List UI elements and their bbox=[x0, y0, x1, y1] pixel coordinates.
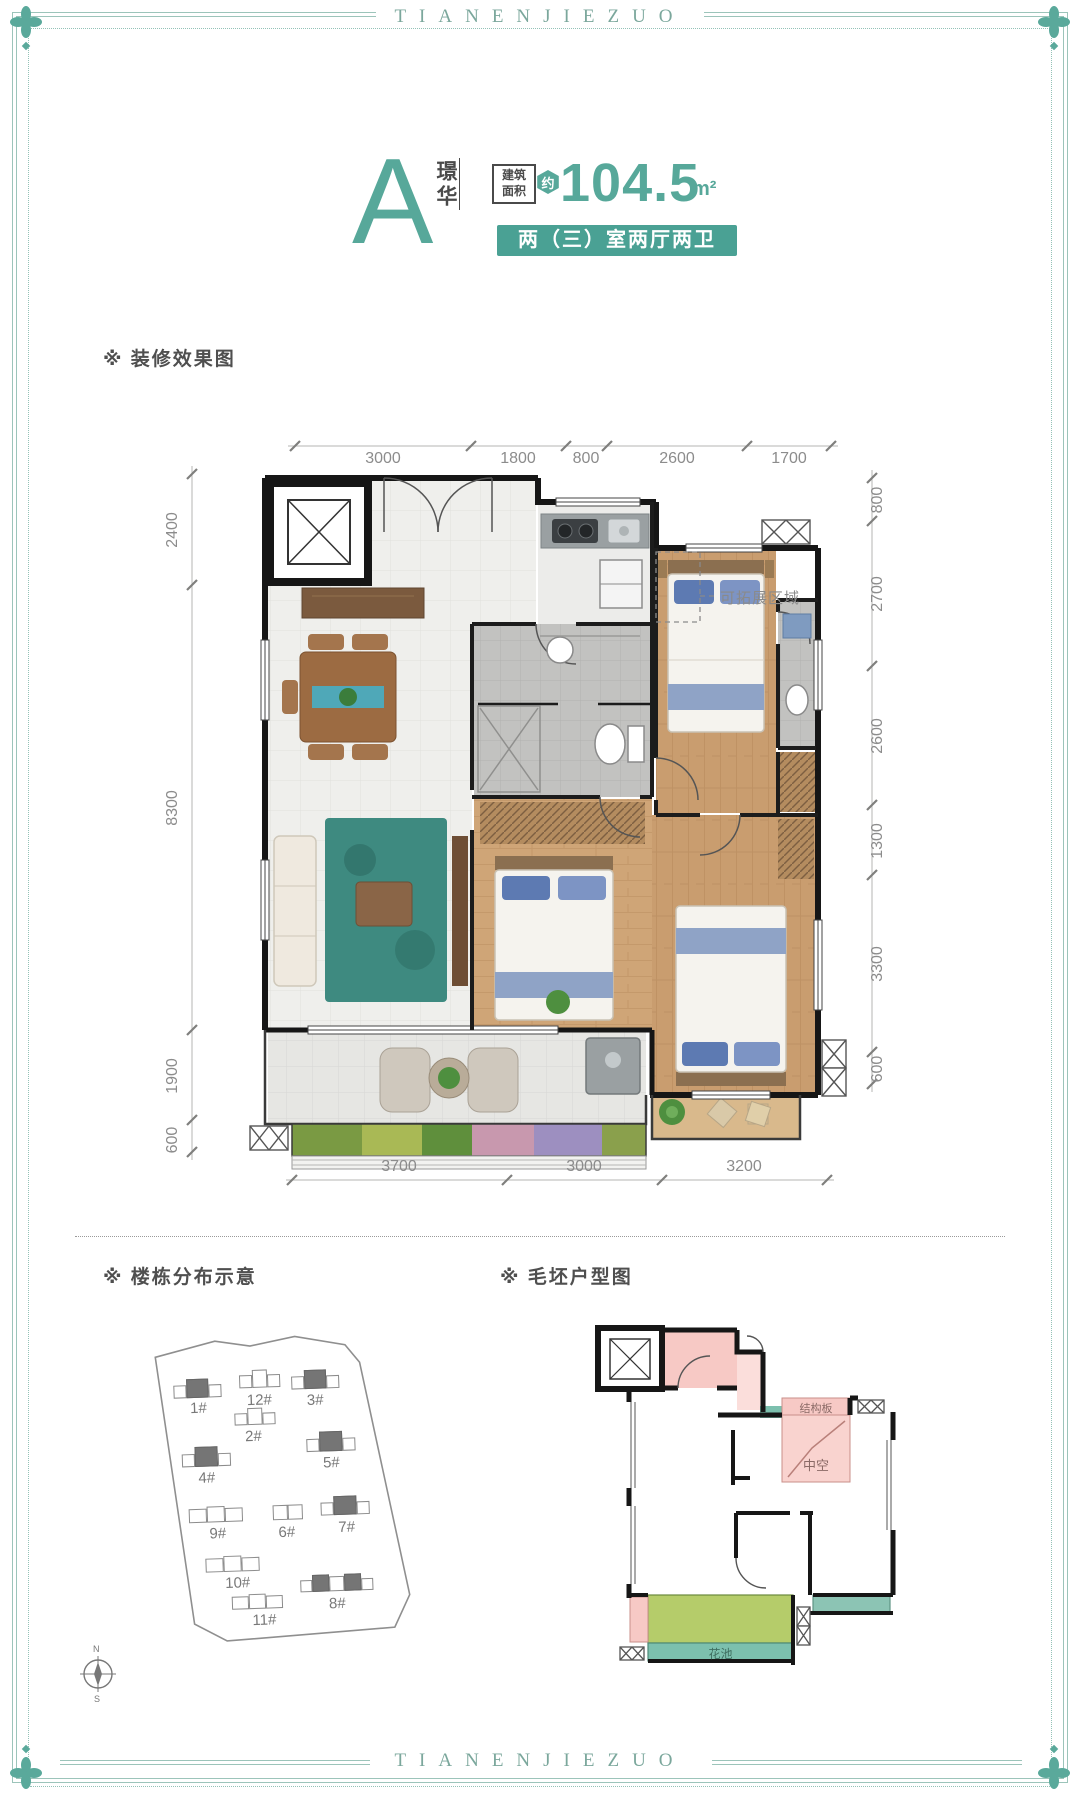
dim-label: 3300 bbox=[869, 929, 887, 999]
flowerbed-label: 花池 bbox=[648, 1645, 793, 1662]
compass-south-label: S bbox=[94, 1694, 100, 1704]
rough-floorplan bbox=[500, 1300, 920, 1680]
building-label: 2# bbox=[245, 1428, 262, 1446]
building-label: 8# bbox=[329, 1595, 346, 1613]
site-building bbox=[189, 1505, 244, 1523]
building-label: 5# bbox=[323, 1454, 340, 1472]
section-label-render: ※ 装修效果图 bbox=[103, 344, 236, 371]
dim-label: 1300 bbox=[869, 806, 887, 876]
divider bbox=[60, 1760, 370, 1761]
site-building bbox=[320, 1495, 370, 1516]
section-label-site: ※ 楼栋分布示意 bbox=[103, 1262, 257, 1289]
dim-label: 2400 bbox=[164, 495, 182, 565]
site-building bbox=[306, 1430, 356, 1452]
poster-page: { "brand": { "top_text": "TIANENJIEZUO",… bbox=[0, 0, 1080, 1795]
building-label: 3# bbox=[307, 1391, 324, 1409]
unit-name: 璟华 bbox=[430, 160, 460, 210]
building-label: 11# bbox=[252, 1611, 277, 1629]
site-building bbox=[173, 1378, 222, 1399]
dim-label: 2700 bbox=[869, 559, 887, 629]
building-label: 6# bbox=[278, 1524, 295, 1542]
dim-label: 3000 bbox=[343, 450, 423, 468]
decorated-floorplan bbox=[140, 430, 900, 1200]
site-building bbox=[234, 1407, 276, 1425]
dim-label: 1900 bbox=[164, 1041, 182, 1111]
clover-icon bbox=[8, 1743, 44, 1791]
expand-area-label: 可拓展区域 bbox=[720, 587, 800, 608]
layout-banner: 两（三）室两厅两卫 bbox=[497, 225, 737, 256]
area-box-line1: 建筑 bbox=[494, 168, 534, 184]
divider bbox=[712, 1764, 1022, 1765]
dim-label: 1700 bbox=[749, 450, 829, 468]
site-plan: 1# 12# 3# 2# 4# 5# 9# 6# 7# 10# 8# 11# bbox=[145, 1325, 476, 1656]
site-building bbox=[273, 1504, 304, 1520]
building-label: 9# bbox=[209, 1525, 226, 1543]
dim-label: 1800 bbox=[478, 450, 558, 468]
building-label: 1# bbox=[190, 1400, 207, 1418]
section-separator bbox=[75, 1236, 1005, 1237]
dim-label: 800 bbox=[869, 465, 887, 535]
dim-label: 600 bbox=[869, 1034, 887, 1104]
site-building bbox=[239, 1369, 281, 1388]
building-label: 10# bbox=[225, 1574, 251, 1592]
site-building bbox=[291, 1369, 340, 1390]
site-building bbox=[300, 1573, 374, 1593]
area-box: 建筑 面积 bbox=[492, 164, 536, 204]
area-value: 104.5 bbox=[560, 156, 700, 210]
structure-board-label: 结构板 bbox=[790, 1400, 842, 1416]
building-label: 7# bbox=[338, 1518, 355, 1536]
brand-text-bottom: TIANENJIEZUO bbox=[0, 1750, 1080, 1772]
void-label: 中空 bbox=[790, 1455, 842, 1474]
clover-icon bbox=[8, 4, 44, 52]
dim-label: 3000 bbox=[544, 1158, 624, 1176]
site-building bbox=[205, 1555, 260, 1573]
dim-label: 800 bbox=[548, 450, 624, 468]
clover-icon bbox=[1036, 1743, 1072, 1791]
bottom-dotted-line bbox=[30, 1786, 1050, 1787]
site-building bbox=[181, 1446, 231, 1468]
dim-label: 2600 bbox=[869, 701, 887, 771]
compass-icon bbox=[80, 1656, 116, 1692]
site-building bbox=[232, 1593, 283, 1610]
dim-label: 3700 bbox=[359, 1158, 439, 1176]
dim-label: 3200 bbox=[704, 1158, 784, 1176]
section-label-rough: ※ 毛坯户型图 bbox=[500, 1262, 633, 1289]
brand-text-top: TIANENJIEZUO bbox=[0, 6, 1080, 28]
clover-icon bbox=[1036, 4, 1072, 52]
area-box-line2: 面积 bbox=[494, 184, 534, 200]
divider bbox=[60, 1764, 370, 1765]
dim-label: 8300 bbox=[164, 773, 182, 843]
compass-north-label: N bbox=[93, 1644, 100, 1654]
area-unit: m² bbox=[692, 178, 716, 201]
divider bbox=[712, 1760, 1022, 1761]
building-label: 4# bbox=[198, 1469, 215, 1487]
unit-letter: A bbox=[352, 140, 433, 262]
dim-label: 600 bbox=[164, 1105, 182, 1175]
divider bbox=[459, 158, 460, 210]
dim-label: 2600 bbox=[637, 450, 717, 468]
